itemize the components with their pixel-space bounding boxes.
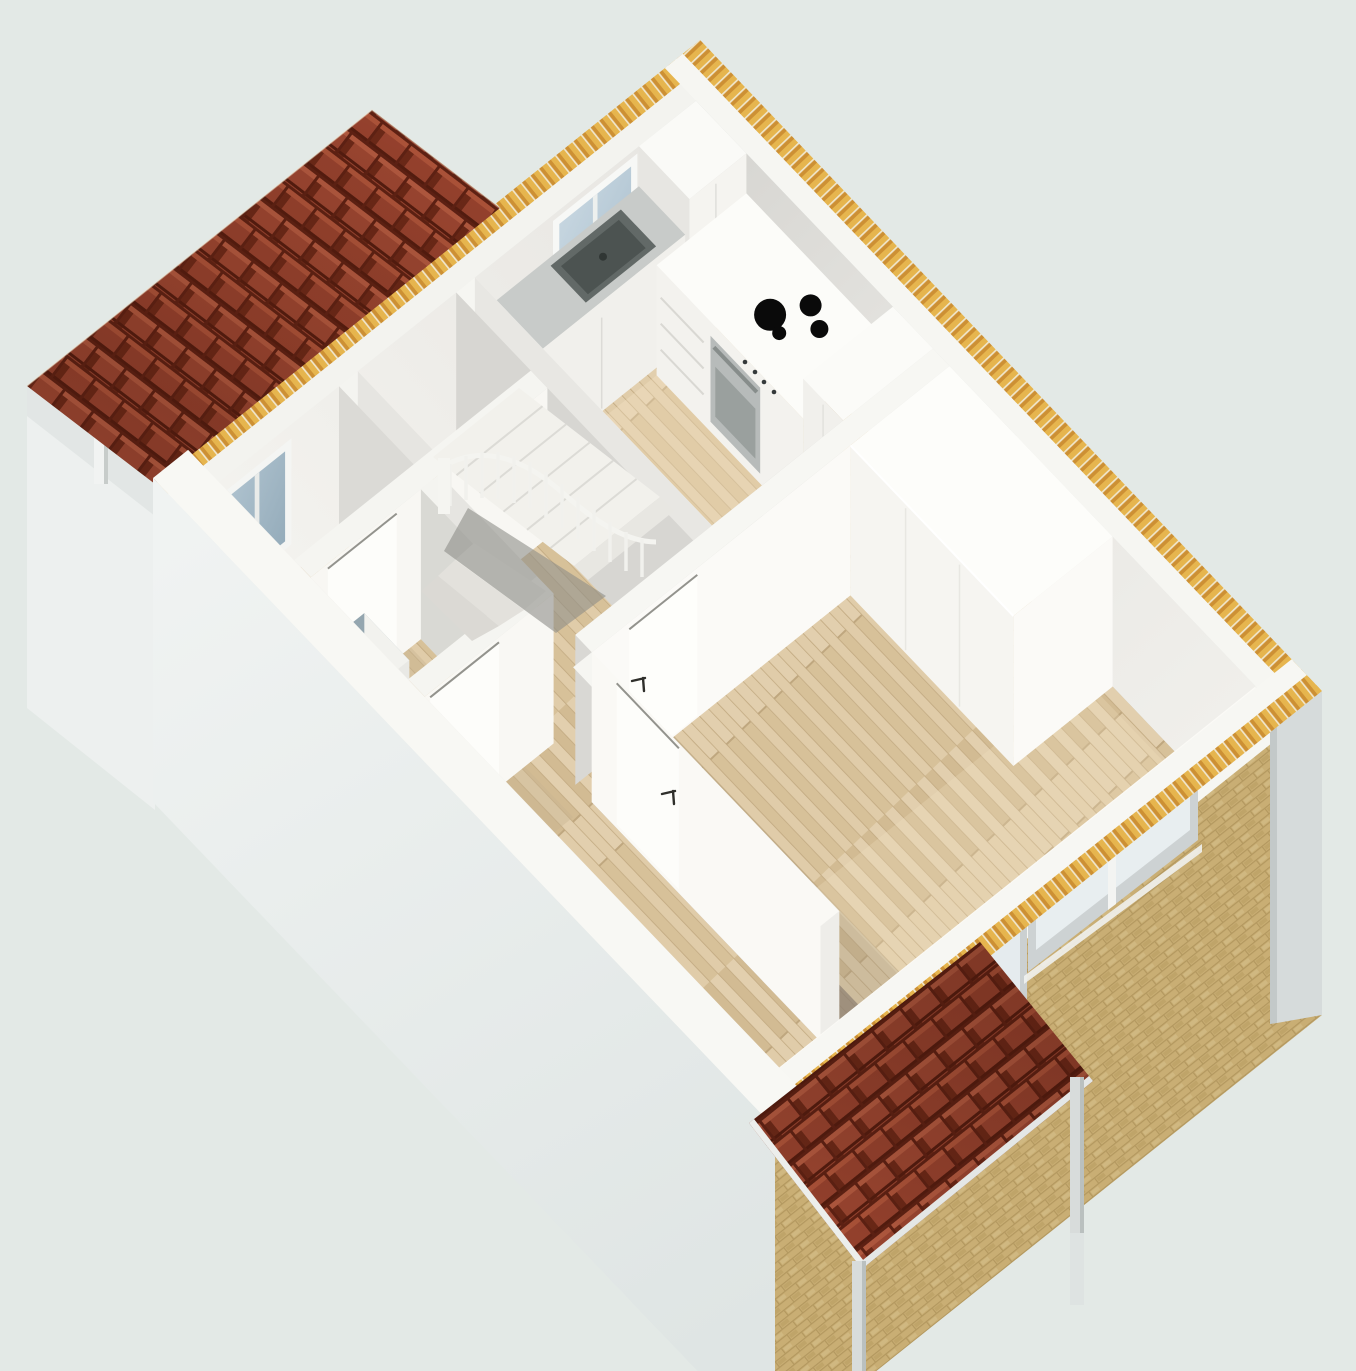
oven-knob-3 [762,380,767,385]
floorplan-3d-render [0,0,1356,1371]
stairs-newel-post [438,458,450,514]
oven-knob-1 [743,360,748,365]
porch-post-right-shadow [1070,1233,1084,1305]
scene-svg [0,0,1356,1371]
stove-burner-3 [810,320,828,338]
porch-post-front-edge [862,1261,866,1371]
corner-pillar-edge [1270,699,1277,1024]
stove-burner-1 [754,299,786,331]
porch-post-right-edge [1080,1077,1084,1233]
stove-burner-2 [800,294,822,316]
oven-knob-4 [772,390,777,395]
oven-knob-2 [753,370,758,375]
corner-pillar [1277,691,1322,1023]
sink-drain [599,253,607,261]
stove-burner-4 [772,326,786,340]
